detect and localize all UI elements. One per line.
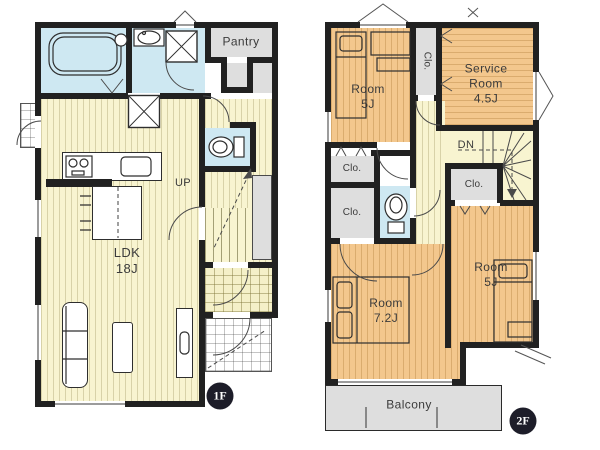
room-name: Room — [369, 296, 403, 311]
room-name: Room — [351, 82, 385, 97]
stairs-winder-2f — [503, 163, 533, 203]
wall-segment — [460, 342, 466, 385]
wall-segment — [497, 163, 503, 203]
wall-segment — [377, 238, 412, 244]
stairs-label-dn: DN — [458, 139, 475, 153]
window — [533, 252, 539, 300]
window — [325, 290, 331, 322]
floorplan-canvas: Pantry UP LDK 18J 1F — [0, 0, 600, 450]
room-name: Room — [474, 260, 508, 275]
closet-label: Clo. — [343, 163, 362, 176]
closet-label: Clo. — [343, 207, 362, 220]
room-name: Room — [465, 77, 508, 92]
room-size: 5J — [474, 275, 508, 290]
closet-label: Clo. — [465, 179, 484, 192]
wall-segment — [374, 150, 380, 244]
room-label-se: Room 5J — [474, 260, 508, 290]
wall-segment — [325, 182, 380, 188]
wall-segment — [500, 200, 539, 206]
window — [360, 22, 406, 28]
room-label-nw: Room 5J — [351, 82, 385, 112]
wall-segment — [436, 22, 442, 131]
room-size: 5J — [351, 97, 385, 112]
wall-segment — [325, 142, 377, 148]
room-label-sw: Room 7.2J — [369, 296, 403, 326]
window — [533, 72, 539, 120]
floor-2f-plan: Room 5J Clo. Service Room 4.5J DN Clo. C… — [0, 0, 600, 450]
room-size: 4.5J — [465, 92, 508, 107]
badge-text: 2F — [516, 414, 529, 429]
wall-segment — [410, 95, 418, 101]
wall-segment — [325, 22, 331, 385]
wall-segment — [445, 163, 451, 348]
window — [338, 379, 452, 385]
floor-badge-2f: 2F — [510, 408, 537, 435]
wall-segment — [325, 22, 539, 28]
wall-segment — [445, 200, 455, 206]
balcony-label: Balcony — [386, 398, 432, 413]
wall-segment — [325, 238, 340, 244]
wall-segment — [325, 150, 331, 156]
window — [325, 112, 331, 142]
room-size: 7.2J — [369, 311, 403, 326]
wall-segment — [434, 95, 442, 101]
room-name: Service — [465, 62, 508, 77]
room-toilet-2f — [380, 186, 410, 238]
wall-segment — [436, 125, 539, 131]
wall-segment — [445, 163, 503, 169]
room-label-service: Service Room 4.5J — [465, 62, 508, 107]
wall-segment — [410, 22, 416, 188]
closet-label: Clo. — [420, 52, 433, 71]
wall-segment — [460, 342, 539, 348]
